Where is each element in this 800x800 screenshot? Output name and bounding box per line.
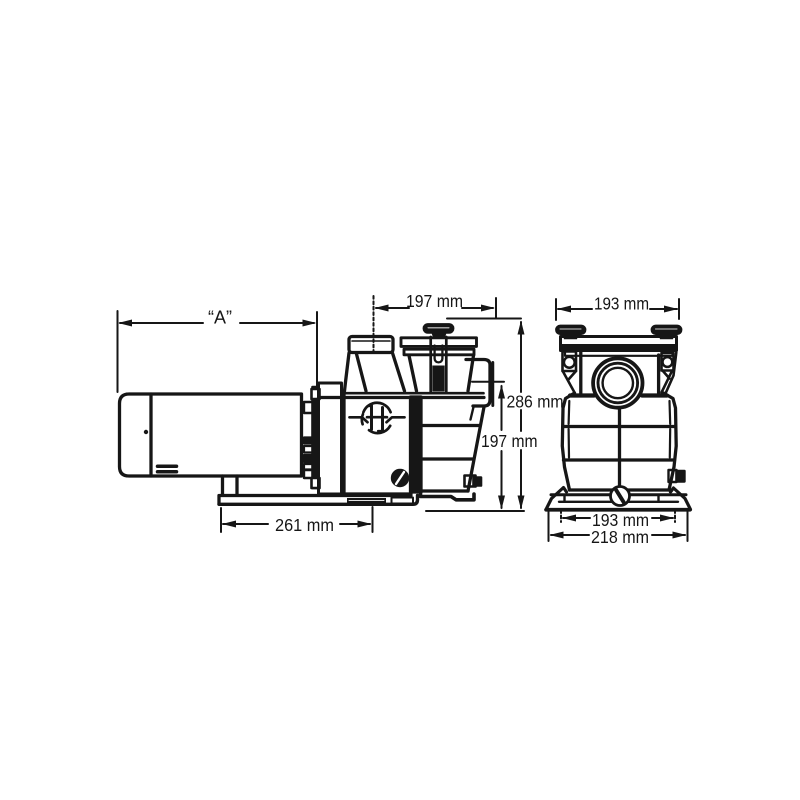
svg-text:197 mm: 197 mm bbox=[406, 291, 463, 311]
svg-text:218 mm: 218 mm bbox=[591, 527, 649, 547]
svg-text:261 mm: 261 mm bbox=[275, 515, 334, 535]
svg-text:286 mm: 286 mm bbox=[507, 392, 564, 412]
svg-text:193 mm: 193 mm bbox=[594, 294, 649, 314]
svg-text:“A”: “A” bbox=[208, 308, 232, 328]
svg-text:197 mm: 197 mm bbox=[481, 431, 538, 451]
